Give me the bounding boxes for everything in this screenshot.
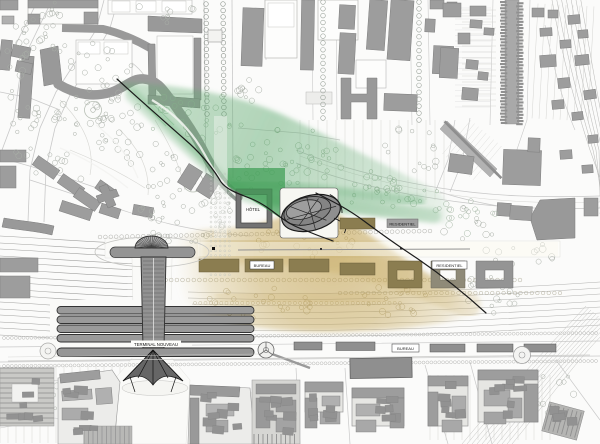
svg-text:BUREAU: BUREAU xyxy=(254,263,271,268)
svg-text:RESIDENTIEL: RESIDENTIEL xyxy=(389,221,416,226)
svg-text:TERMINAL NOUVEAU: TERMINAL NOUVEAU xyxy=(134,342,178,347)
svg-text:BUREAU: BUREAU xyxy=(397,346,414,351)
svg-text:RESIDENTIEL: RESIDENTIEL xyxy=(436,263,463,268)
svg-text:HÔTEL: HÔTEL xyxy=(246,207,261,212)
